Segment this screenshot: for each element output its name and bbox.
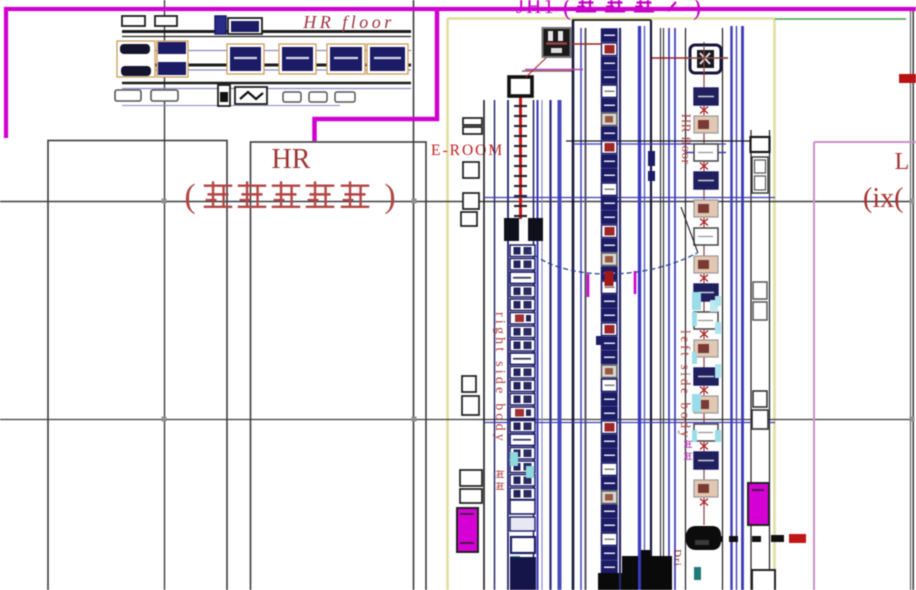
svg-text:Dri: Dri [671,549,683,567]
svg-text:(ix(: (ix( [863,183,903,214]
svg-text:(: ( [563,0,571,21]
svg-text:left side body: left side body [678,330,693,440]
svg-text:): ) [693,0,701,21]
svg-text:HR floor: HR floor [679,114,694,165]
svg-text:right side body: right side body [492,312,507,444]
svg-text:(: ( [184,178,195,215]
svg-text:JH1: JH1 [516,0,556,18]
svg-text:HR floor: HR floor [302,12,395,32]
svg-text:): ) [384,178,395,215]
svg-text:HR: HR [272,144,311,175]
svg-text:E-ROOM: E-ROOM [431,142,504,159]
svg-text:L: L [895,149,910,175]
